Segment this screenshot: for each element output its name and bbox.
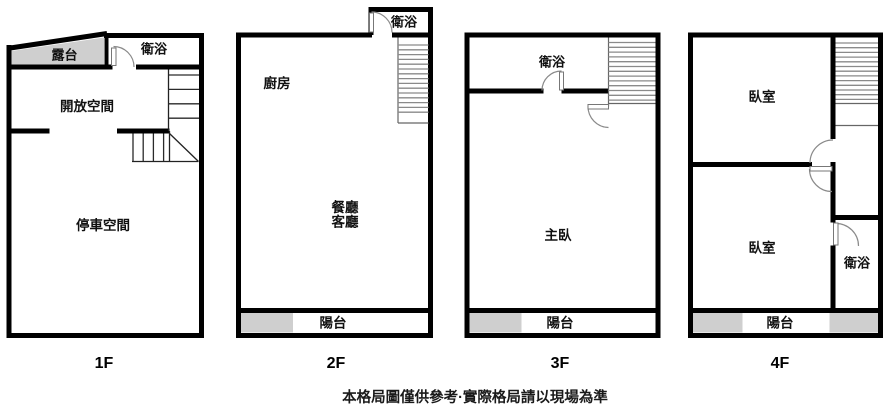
door-arc [372,12,393,33]
disclaimer-text: 本格局圖僅供參考·實際格局請以現場為準 [342,388,608,406]
floor-plans-svg: 露台 衛浴 開放空間 停車空間 1F 衛浴 廚房 餐廳 客廳 陽台 2F [0,0,889,413]
room-label-master-bedroom: 主臥 [545,227,573,243]
stairs [609,38,656,107]
floor-plan-image: 露台 衛浴 開放空間 停車空間 1F 衛浴 廚房 餐廳 客廳 陽台 2F [0,0,889,413]
stairs [398,38,429,124]
room-label-living: 客廳 [331,214,359,230]
room-label-bedroom-lower: 臥室 [749,240,777,256]
floor-2-plan: 衛浴 廚房 餐廳 客廳 陽台 2F [236,7,433,372]
door-arc [810,140,833,163]
floor-label-3f: 3F [551,355,570,372]
floor-label-2f: 2F [327,355,346,372]
door-arc [836,224,859,247]
door-leaf [560,72,564,90]
balcony-shaded-area [241,313,293,333]
stairs [836,43,879,126]
room-label-open-space: 開放空間 [60,98,114,114]
floor-1-plan: 露台 衛浴 開放空間 停車空間 1F [7,33,205,372]
stairs-lower [132,131,199,162]
door-leaf [370,13,374,32]
room-label-balcony: 陽台 [320,315,347,331]
door-arc [810,169,833,192]
door-leaf [810,167,832,172]
floor-label-1f: 1F [95,355,114,372]
room-label-balcony: 陽台 [547,315,574,331]
room-label-bathroom: 衛浴 [390,15,418,30]
stair-winder-diagonal [170,134,199,162]
floor-3-plan: 衛浴 主臥 陽台 3F [465,35,659,372]
balcony-shaded-area [470,313,522,333]
balcony-shaded-area-left [693,313,743,333]
door-leaf [112,48,117,66]
door-arc [542,71,562,91]
floor-4-plan: 臥室 臥室 衛浴 陽台 4F [688,33,883,373]
door-leaf [588,105,609,110]
stairs-upper [169,70,200,132]
room-label-dining: 餐廳 [331,199,359,215]
door-arc [588,107,609,128]
balcony-shaded-area-right [830,313,879,333]
room-label-bathroom: 衛浴 [843,256,871,271]
floor-label-4f: 4F [771,355,790,372]
room-label-balcony: 陽台 [767,315,794,331]
room-label-bathroom: 衛浴 [538,55,566,70]
room-label-kitchen: 廚房 [264,75,291,91]
room-label-parking: 停車空間 [76,217,130,233]
door-leaf [834,223,839,245]
room-label-bedroom-upper: 臥室 [749,89,777,105]
room-label-terrace: 露台 [51,48,77,63]
room-label-bathroom: 衛浴 [140,42,168,57]
door-arc [114,47,135,68]
